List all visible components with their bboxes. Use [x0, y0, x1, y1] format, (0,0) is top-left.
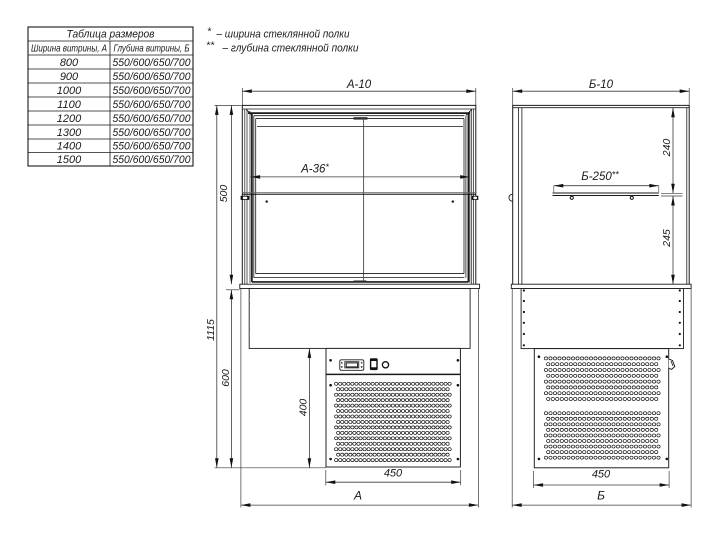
- svg-text:1100: 1100: [57, 99, 82, 111]
- svg-text:900: 900: [60, 71, 79, 83]
- svg-text:600: 600: [220, 369, 232, 387]
- svg-text:550/600/650/700: 550/600/650/700: [113, 127, 192, 139]
- svg-text:550/600/650/700: 550/600/650/700: [113, 71, 192, 83]
- svg-text:Ширина витрины, А: Ширина витрины, А: [31, 43, 107, 55]
- svg-text:1115: 1115: [205, 319, 217, 341]
- svg-text:Б-10: Б-10: [589, 79, 614, 91]
- svg-text:550/600/650/700: 550/600/650/700: [113, 99, 192, 111]
- svg-text:1300: 1300: [57, 127, 82, 139]
- svg-text:1200: 1200: [57, 113, 82, 125]
- svg-text:– ширина стеклянной полки: – ширина стеклянной полки: [216, 29, 350, 41]
- svg-text:1000: 1000: [57, 85, 82, 97]
- svg-text:500: 500: [218, 185, 230, 203]
- svg-text:**: **: [206, 40, 215, 52]
- svg-text:800: 800: [60, 57, 79, 69]
- svg-text:А-36*: А-36*: [300, 162, 329, 176]
- svg-text:450: 450: [384, 468, 403, 480]
- svg-text:245: 245: [661, 229, 673, 248]
- svg-text:Таблица размеров: Таблица размеров: [67, 29, 155, 41]
- svg-text:550/600/650/700: 550/600/650/700: [113, 57, 192, 69]
- svg-text:А: А: [353, 489, 362, 503]
- svg-text:А-10: А-10: [346, 79, 372, 91]
- svg-text:1400: 1400: [57, 141, 82, 153]
- svg-text:550/600/650/700: 550/600/650/700: [113, 154, 192, 166]
- svg-text:550/600/650/700: 550/600/650/700: [113, 85, 192, 97]
- svg-text:240: 240: [661, 139, 673, 158]
- svg-text:– глубина стеклянной полки: – глубина стеклянной полки: [222, 43, 359, 55]
- svg-text:1500: 1500: [57, 154, 82, 166]
- svg-text:Б: Б: [597, 489, 605, 503]
- svg-text:550/600/650/700: 550/600/650/700: [113, 113, 192, 125]
- svg-text:550/600/650/700: 550/600/650/700: [113, 141, 192, 153]
- svg-text:450: 450: [592, 469, 611, 481]
- svg-text:400: 400: [298, 399, 310, 417]
- svg-text:Глубина витрины, Б: Глубина витрины, Б: [114, 43, 190, 55]
